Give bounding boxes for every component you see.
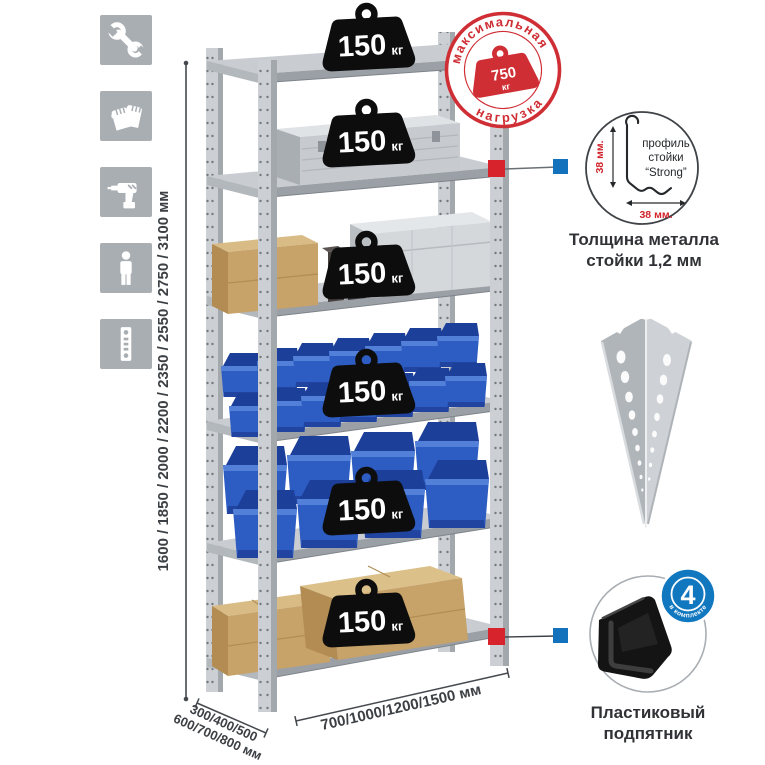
- shelf-load-value: 150: [337, 257, 387, 291]
- width-dimension-label: 700/1000/1200/1500 мм: [319, 681, 483, 734]
- foot-caption-line1: Пластиковый: [591, 703, 706, 722]
- profile-detail: 38 мм. 38 мм. профиль стойки “Strong” То…: [569, 112, 719, 270]
- blue-marker-top: [553, 159, 568, 174]
- front-left-post: [258, 60, 277, 712]
- profile-label-2: стойки: [648, 152, 683, 164]
- profile-dim-vertical: 38 мм.: [594, 140, 606, 173]
- front-right-post: [490, 44, 509, 666]
- shelf-load-unit: кг: [391, 388, 404, 404]
- width-dimension: 700/1000/1200/1500 мм: [295, 668, 509, 734]
- quantity-badge: 4 в комплекте: [661, 569, 716, 624]
- shelf-load-badge-1: 150 кг: [320, 4, 416, 72]
- height-dimension: 1600 / 1850 / 2000 / 2200 / 2350 / 2550 …: [155, 61, 188, 702]
- profile-caption-line2: стойки 1,2 мм: [586, 251, 702, 270]
- shelf-load-value: 150: [337, 125, 387, 159]
- depth-dimension: 300/400/500 600/700/800 мм: [171, 698, 268, 763]
- red-marker-bottom: [488, 628, 505, 645]
- shelf-load-value: 150: [337, 605, 387, 639]
- product-infographic: 1600 / 1850 / 2000 / 2200 / 2350 / 2550 …: [0, 0, 765, 765]
- foot-callout-connector: [488, 628, 568, 645]
- shelf-load-unit: кг: [391, 42, 404, 58]
- shelf-load-value: 150: [337, 493, 387, 527]
- foot-caption-line2: подпятник: [604, 724, 693, 743]
- shelf-load-unit: кг: [391, 618, 404, 634]
- red-marker-top: [488, 160, 505, 177]
- shelf-load-value: 150: [337, 29, 387, 63]
- plastic-foot-detail: 4 в комплекте Пластиковый подпятник: [590, 569, 716, 744]
- upright-profile-image: [598, 310, 694, 528]
- quantity-badge-value: 4: [680, 580, 695, 610]
- profile-label-1: профиль: [642, 138, 690, 150]
- profile-label-3: “Strong”: [645, 167, 687, 179]
- shelf-load-badge-2: 150 кг: [320, 100, 416, 168]
- shelf-load-unit: кг: [391, 138, 404, 154]
- blue-marker-bottom: [553, 628, 568, 643]
- profile-dim-horizontal: 38 мм.: [639, 209, 672, 221]
- shelf-load-value: 150: [337, 375, 387, 409]
- profile-callout-connector: [488, 159, 568, 177]
- back-left-post: [206, 48, 223, 692]
- height-dimension-label: 1600 / 1850 / 2000 / 2200 / 2350 / 2550 …: [155, 191, 172, 572]
- scene: 1600 / 1850 / 2000 / 2200 / 2350 / 2550 …: [0, 0, 765, 765]
- shelf-load-unit: кг: [391, 270, 404, 286]
- profile-caption-line1: Толщина металла: [569, 230, 719, 249]
- shelf-load-unit: кг: [391, 506, 404, 522]
- max-load-stamp: максимальная нагрузка 750 кг: [438, 5, 569, 136]
